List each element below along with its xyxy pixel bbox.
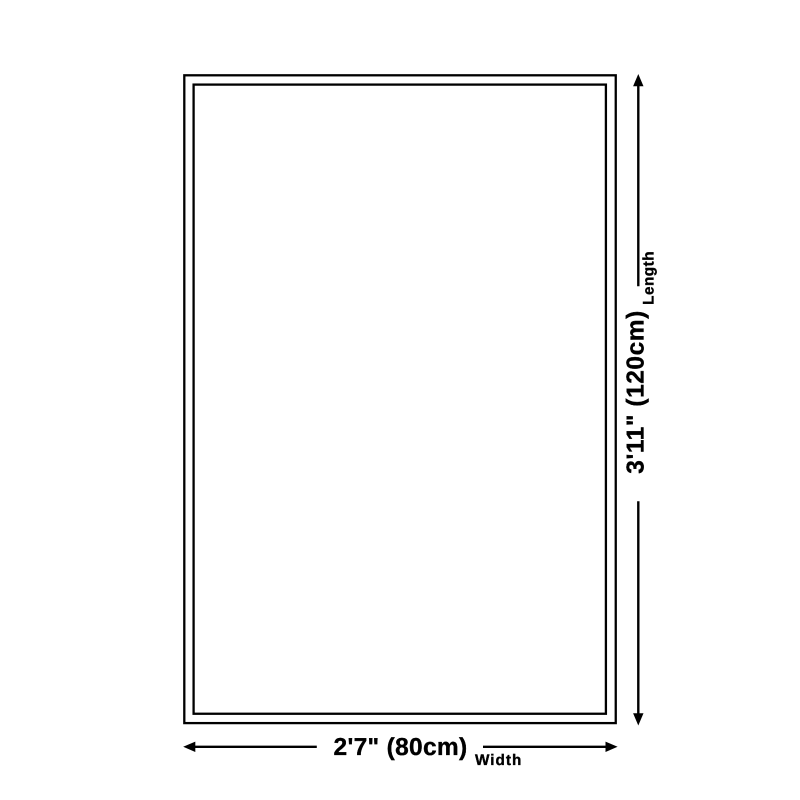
svg-text:3'11" (120cm): 3'11" (120cm) <box>622 310 649 474</box>
svg-text:Length: Length <box>641 251 658 305</box>
svg-text:Width: Width <box>475 752 522 769</box>
svg-text:2'7" (80cm): 2'7" (80cm) <box>334 734 468 761</box>
